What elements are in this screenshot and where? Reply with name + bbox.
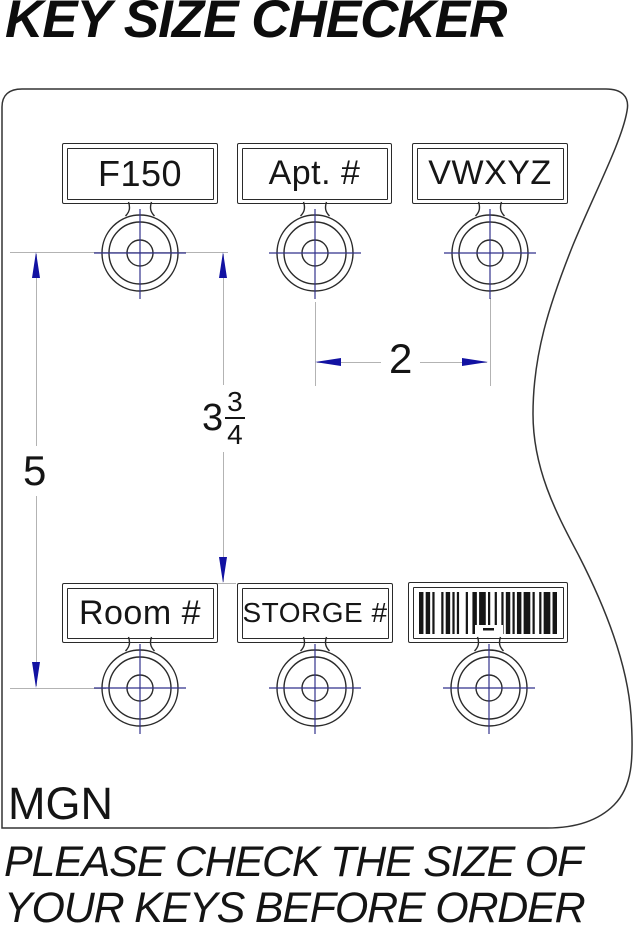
key-ring-icon — [265, 201, 365, 305]
maker-code: MGN — [8, 781, 113, 826]
key-tag-room: Room # — [62, 583, 218, 643]
barcode-icon — [419, 592, 557, 634]
key-label: Apt. # — [269, 154, 361, 193]
key-label: Room # — [79, 594, 201, 633]
key-plate: F150 — [62, 143, 218, 204]
key-tag-apt: Apt. # — [237, 143, 392, 204]
arrow-down-3-3-4 — [219, 557, 227, 583]
extension-line-left-key — [315, 302, 316, 386]
arrow-down-5 — [32, 662, 40, 688]
key-plate-inner — [413, 587, 564, 639]
key-label: F150 — [98, 153, 182, 195]
key-ring-icon — [90, 636, 190, 740]
barcode-notch-dash — [483, 628, 494, 631]
key-tag-f150: F150 — [62, 143, 218, 204]
fraction-numerator: 3 — [225, 387, 245, 419]
key-size-checker-drawing: KEY SIZE CHECKER F150 Apt. # — [0, 0, 640, 931]
key-plate: Apt. # — [237, 143, 392, 204]
key-plate: Room # — [62, 583, 218, 643]
key-ring-icon — [439, 636, 539, 740]
key-ring-icon — [265, 636, 365, 740]
order-notice: PLEASE CHECK THE SIZE OF YOUR KEYS BEFOR… — [4, 839, 585, 931]
dimension-value-2: 2 — [381, 334, 420, 384]
key-plate-inner: VWXYZ — [417, 148, 564, 200]
fraction-denominator: 4 — [227, 419, 243, 449]
order-notice-line2: YOUR KEYS BEFORE ORDER — [4, 885, 585, 931]
dimension-value-3-3-4: 334 — [198, 385, 249, 452]
key-ring-icon — [90, 201, 190, 305]
key-plate-inner: Room # — [67, 588, 214, 639]
key-tag-barcode — [408, 582, 568, 643]
order-notice-line1: PLEASE CHECK THE SIZE OF — [4, 839, 585, 885]
key-plate: VWXYZ — [412, 143, 568, 204]
fraction-whole: 3 — [202, 399, 223, 437]
dimension-value-5: 5 — [15, 446, 54, 496]
key-tag-vwxyz: VWXYZ — [412, 143, 568, 204]
key-plate: STORGE # — [237, 583, 393, 643]
key-plate-inner: Apt. # — [242, 148, 388, 200]
key-tag-storge: STORGE # — [237, 583, 393, 643]
arrow-left-2 — [315, 358, 341, 366]
key-label: STORGE # — [242, 597, 387, 629]
arrow-up-5 — [32, 252, 40, 278]
arrow-up-3-3-4 — [219, 252, 227, 278]
key-plate-inner: STORGE # — [242, 588, 389, 639]
key-label: VWXYZ — [428, 154, 551, 193]
key-plate-inner: F150 — [67, 148, 214, 200]
extension-line-right-key — [490, 298, 491, 386]
arrow-right-2 — [462, 358, 488, 366]
key-plate — [408, 582, 568, 643]
key-ring-icon — [440, 201, 540, 305]
